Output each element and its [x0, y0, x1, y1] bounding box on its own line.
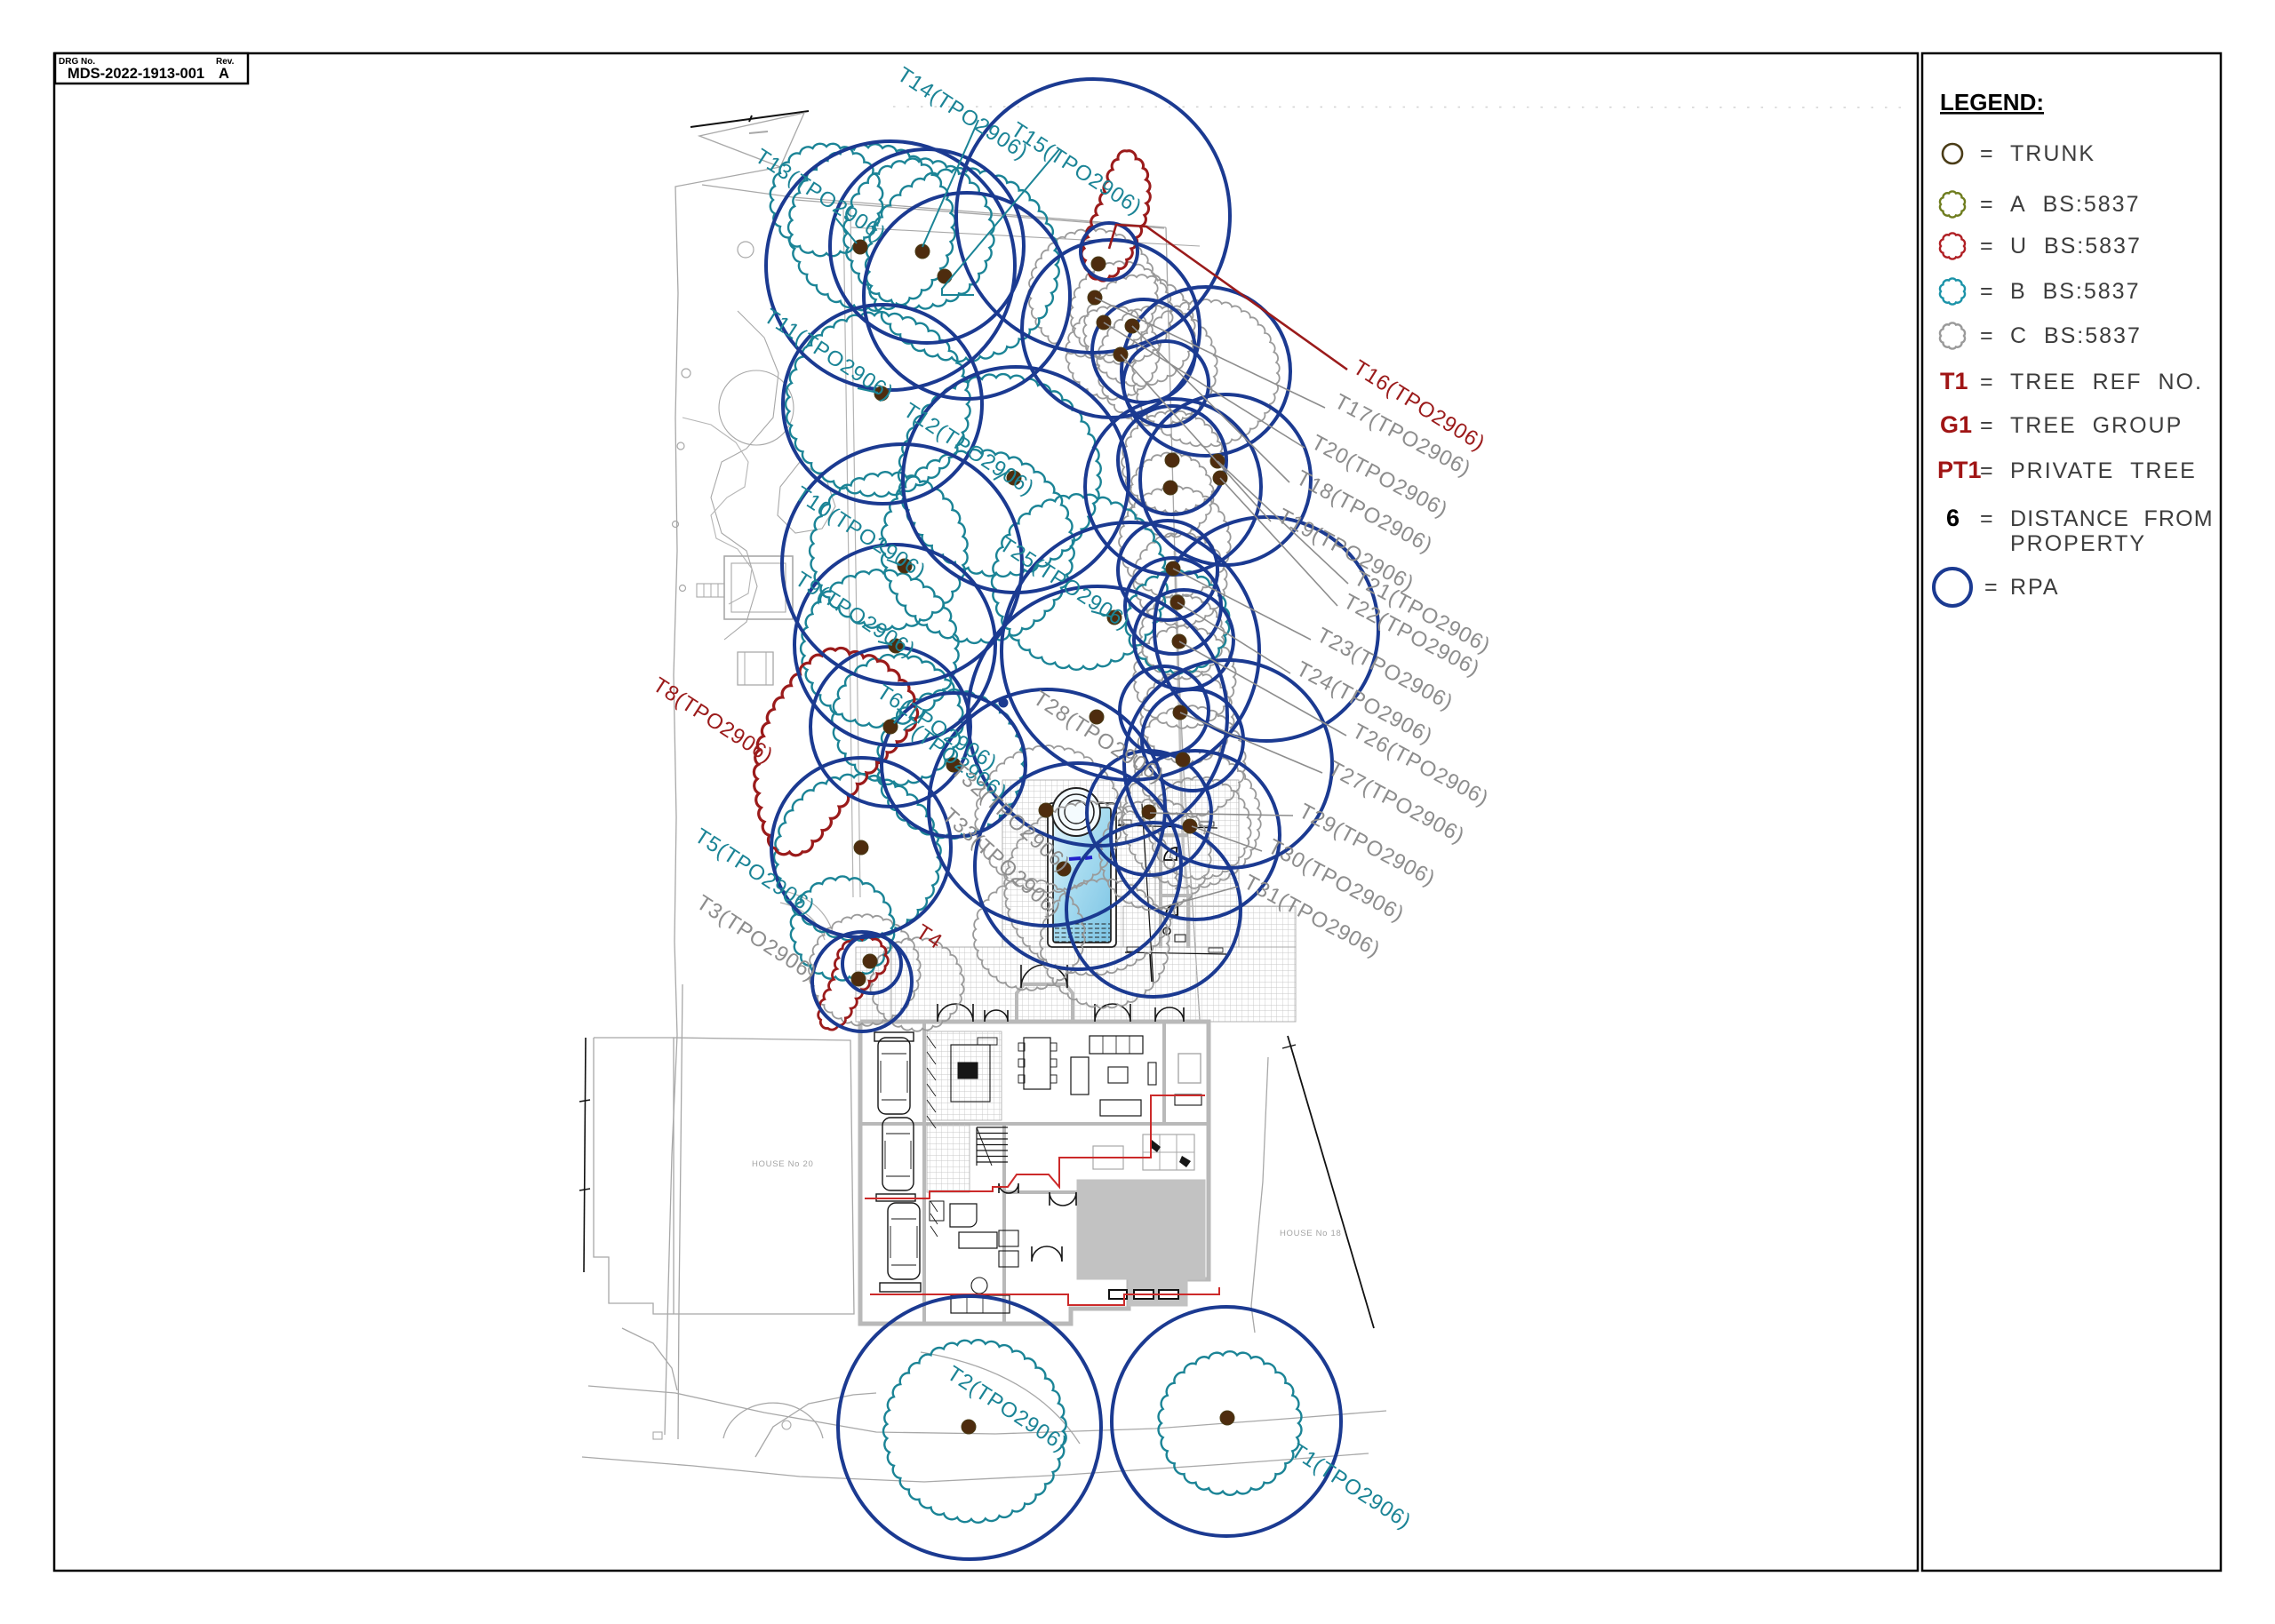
svg-text:=: =	[1980, 141, 1993, 166]
svg-text:A BS:5837: A BS:5837	[2010, 192, 2140, 217]
svg-text:HOUSE No 18: HOUSE No 18	[1280, 1229, 1341, 1238]
svg-text:PROPERTY: PROPERTY	[2010, 531, 2146, 556]
svg-text:DISTANCE FROM: DISTANCE FROM	[2010, 506, 2214, 531]
svg-text:A: A	[219, 66, 229, 82]
svg-text:C BS:5837: C BS:5837	[2010, 323, 2142, 348]
svg-text:=: =	[1980, 458, 1993, 483]
svg-text:=: =	[1980, 506, 1993, 531]
svg-text:6: 6	[1946, 505, 1960, 531]
svg-text:=: =	[1980, 279, 1993, 304]
svg-text:PT1: PT1	[1937, 457, 1982, 483]
svg-text:LEGEND:: LEGEND:	[1940, 89, 2044, 115]
svg-text:=: =	[1980, 413, 1993, 438]
svg-text:T1: T1	[1940, 368, 1968, 394]
svg-text:PRIVATE TREE: PRIVATE TREE	[2010, 458, 2197, 483]
svg-text:=: =	[1984, 575, 1998, 600]
svg-text:U BS:5837: U BS:5837	[2010, 234, 2142, 259]
svg-text:=: =	[1980, 192, 1993, 217]
svg-text:=: =	[1980, 323, 1993, 348]
svg-text:=: =	[1980, 370, 1993, 394]
svg-text:RPA: RPA	[2010, 575, 2060, 600]
svg-text:TREE GROUP: TREE GROUP	[2010, 413, 2183, 438]
svg-text:TRUNK: TRUNK	[2010, 141, 2095, 166]
svg-text:G1: G1	[1940, 411, 1972, 438]
svg-text:MDS-2022-1913-001: MDS-2022-1913-001	[68, 66, 204, 82]
svg-text:HOUSE No 20: HOUSE No 20	[752, 1159, 813, 1169]
svg-text:TREE REF NO.: TREE REF NO.	[2010, 370, 2203, 394]
svg-text:B BS:5837: B BS:5837	[2010, 279, 2140, 304]
svg-text:=: =	[1980, 234, 1993, 259]
